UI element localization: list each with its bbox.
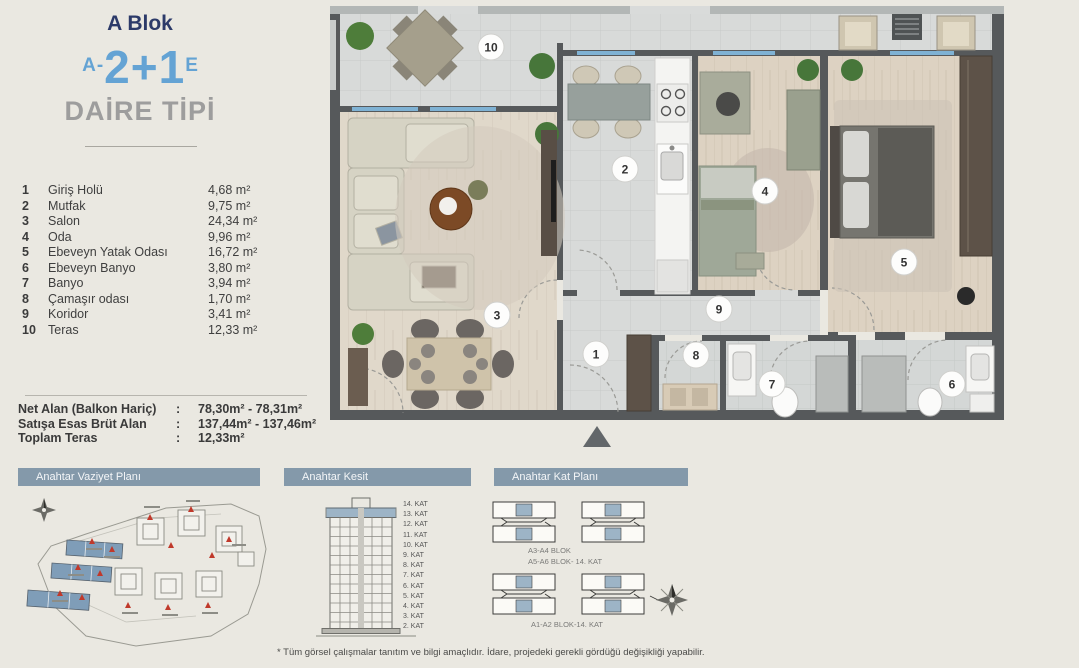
shower <box>862 356 906 412</box>
floor-label: 7. KAT <box>403 571 443 581</box>
summary-row: Toplam Teras:12,33m² <box>18 431 328 446</box>
legend-row: 9Koridor3,41 m² <box>22 307 312 323</box>
double-bed <box>830 126 934 238</box>
summary-colon: : <box>176 417 198 432</box>
legend-row: 10Teras12,33 m² <box>22 323 312 339</box>
floor-label: 3. KAT <box>403 612 443 622</box>
compass-icon <box>656 584 688 616</box>
floor-label: 8. KAT <box>403 561 443 571</box>
section-header-site: Anahtar Vaziyet Planı <box>18 468 260 486</box>
legend-area: 3,94 m² <box>208 276 298 292</box>
ac-unit <box>892 14 922 40</box>
floor-plan-drawing: 10 2 4 5 3 9 1 8 7 6 <box>330 0 1004 462</box>
legend-row: 4Oda9,96 m² <box>22 230 312 246</box>
site-plan <box>16 494 272 654</box>
summary-value: 78,30m² - 78,31m² <box>198 402 328 417</box>
summary-value: 137,44m² - 137,46m² <box>198 417 328 432</box>
legend-no: 10 <box>22 323 48 339</box>
summary-colon: : <box>176 431 198 446</box>
legend-no: 2 <box>22 199 48 215</box>
block-title: A Blok <box>0 12 280 36</box>
floor-label: 14. KAT <box>403 500 443 510</box>
badge-7: 7 <box>769 378 776 392</box>
tv-unit <box>541 130 557 256</box>
area-summary: Net Alan (Balkon Hariç):78,30m² - 78,31m… <box>18 402 328 446</box>
legend-name: Giriş Holü <box>48 183 208 199</box>
floor-label: 9. KAT <box>403 551 443 561</box>
section-header-kesit: Anahtar Kesit <box>284 468 471 486</box>
legend-no: 1 <box>22 183 48 199</box>
plant-icon <box>841 59 863 81</box>
legend-area: 9,96 m² <box>208 230 298 246</box>
legend-row: 7Banyo3,94 m² <box>22 276 312 292</box>
legend-area: 16,72 m² <box>208 245 298 261</box>
legend-no: 4 <box>22 230 48 246</box>
badge-8: 8 <box>693 349 700 363</box>
wardrobe <box>960 56 992 256</box>
unit-code-suffix: E <box>185 55 198 76</box>
wardrobe <box>787 90 820 170</box>
badge-1: 1 <box>593 348 600 362</box>
legend-row: 5Ebeveyn Yatak Odası16,72 m² <box>22 245 312 261</box>
legend-no: 8 <box>22 292 48 308</box>
hall-cabinet <box>627 335 651 411</box>
title-divider <box>85 146 197 147</box>
legend-name: Mutfak <box>48 199 208 215</box>
floor-label: 5. KAT <box>403 592 443 602</box>
legend-area: 1,70 m² <box>208 292 298 308</box>
compass-icon <box>32 498 56 522</box>
toilet-icon <box>918 388 942 416</box>
floor-label: 4. KAT <box>403 602 443 612</box>
room-9-koridor-floor <box>563 290 820 335</box>
kitchen-counter <box>655 58 690 294</box>
summary-value: 12,33m² <box>198 431 328 446</box>
badge-3: 3 <box>494 309 501 323</box>
badge-2: 2 <box>622 163 629 177</box>
plant-icon <box>529 53 555 79</box>
legend-name: Salon <box>48 214 208 230</box>
legend-name: Koridor <box>48 307 208 323</box>
summary-row: Satışa Esas Brüt Alan:137,44m² - 137,46m… <box>18 417 328 432</box>
legend-area: 12,33 m² <box>208 323 298 339</box>
plant-icon <box>346 22 374 50</box>
legend-row: 8Çamaşır odası1,70 m² <box>22 292 312 308</box>
desk-chair <box>716 92 740 116</box>
disclaimer-text: * Tüm görsel çalışmalar tanıtım ve bilgi… <box>277 647 705 658</box>
badge-6: 6 <box>949 378 956 392</box>
legend-name: Çamaşır odası <box>48 292 208 308</box>
coffee-table-tray <box>439 197 457 215</box>
legend-no: 6 <box>22 261 48 277</box>
summary-label: Satışa Esas Brüt Alan <box>18 417 176 432</box>
floor-plan: 10 2 4 5 3 9 1 8 7 6 <box>330 0 1004 462</box>
floor-label: 6. KAT <box>403 582 443 592</box>
washing-machine <box>663 384 717 410</box>
legend-no: 3 <box>22 214 48 230</box>
stove-icon <box>657 84 688 122</box>
legend-name: Teras <box>48 323 208 339</box>
unit-code: A-2+1E <box>0 40 280 94</box>
chair <box>957 287 975 305</box>
legend-no: 7 <box>22 276 48 292</box>
sink-icon <box>657 144 688 194</box>
legend-row: 2Mutfak9,75 m² <box>22 199 312 215</box>
badge-9: 9 <box>716 303 723 317</box>
sideboard <box>348 348 368 406</box>
kat-label-row1b: A5-A6 BLOK- 14. KAT <box>528 557 602 566</box>
section-header-kat: Anahtar Kat Planı <box>494 468 688 486</box>
other-blocks <box>115 510 254 599</box>
plant-icon <box>352 323 374 345</box>
legend-no: 9 <box>22 307 48 323</box>
info-panel: A Blok A-2+1E DAİRE TİPİ 1Giriş Holü4,68… <box>0 0 300 460</box>
legend-row: 3Salon24,34 m² <box>22 214 312 230</box>
site-plan-drawing <box>16 494 272 654</box>
floor-label: 2. KAT <box>403 622 443 632</box>
legend-name: Ebeveyn Banyo <box>48 261 208 277</box>
kat-label-row2: A1-A2 BLOK-14. KAT <box>531 620 603 629</box>
rug <box>395 126 565 310</box>
unit-code-prefix: A- <box>82 55 104 76</box>
plant-icon <box>797 59 819 81</box>
floor-label: 11. KAT <box>403 531 443 541</box>
legend-area: 3,80 m² <box>208 261 298 277</box>
legend-area: 3,41 m² <box>208 307 298 323</box>
floor-label: 10. KAT <box>403 541 443 551</box>
summary-colon: : <box>176 402 198 417</box>
kat-label-row1a: A3-A4 BLOK <box>528 546 571 555</box>
kesit-floor-labels: 14. KAT 13. KAT 12. KAT 11. KAT 10. KAT … <box>403 500 443 633</box>
summary-divider <box>25 395 307 396</box>
floor-label: 12. KAT <box>403 520 443 530</box>
legend-area: 24,34 m² <box>208 214 298 230</box>
summary-row: Net Alan (Balkon Hariç):78,30m² - 78,31m… <box>18 402 328 417</box>
legend-name: Oda <box>48 230 208 246</box>
kesit-drawing <box>316 496 416 644</box>
legend-row: 6Ebeveyn Banyo3,80 m² <box>22 261 312 277</box>
badge-5: 5 <box>901 256 908 270</box>
legend-no: 5 <box>22 245 48 261</box>
summary-label: Net Alan (Balkon Hariç) <box>18 402 176 417</box>
side-table <box>468 180 488 200</box>
floor-label: 13. KAT <box>403 510 443 520</box>
legend-row: 1Giriş Holü4,68 m² <box>22 183 312 199</box>
legend-name: Ebeveyn Yatak Odası <box>48 245 208 261</box>
legend-name: Banyo <box>48 276 208 292</box>
unit-subtitle: DAİRE TİPİ <box>0 96 280 127</box>
badge-4: 4 <box>762 185 769 199</box>
shower <box>816 356 848 412</box>
summary-label: Toplam Teras <box>18 431 176 446</box>
room-legend: 1Giriş Holü4,68 m² 2Mutfak9,75 m² 3Salon… <box>22 183 312 338</box>
unit-code-main: 2+1 <box>104 41 185 93</box>
badge-10: 10 <box>484 41 498 55</box>
legend-area: 4,68 m² <box>208 183 298 199</box>
entrance-arrow-icon <box>583 426 611 447</box>
legend-area: 9,75 m² <box>208 199 298 215</box>
